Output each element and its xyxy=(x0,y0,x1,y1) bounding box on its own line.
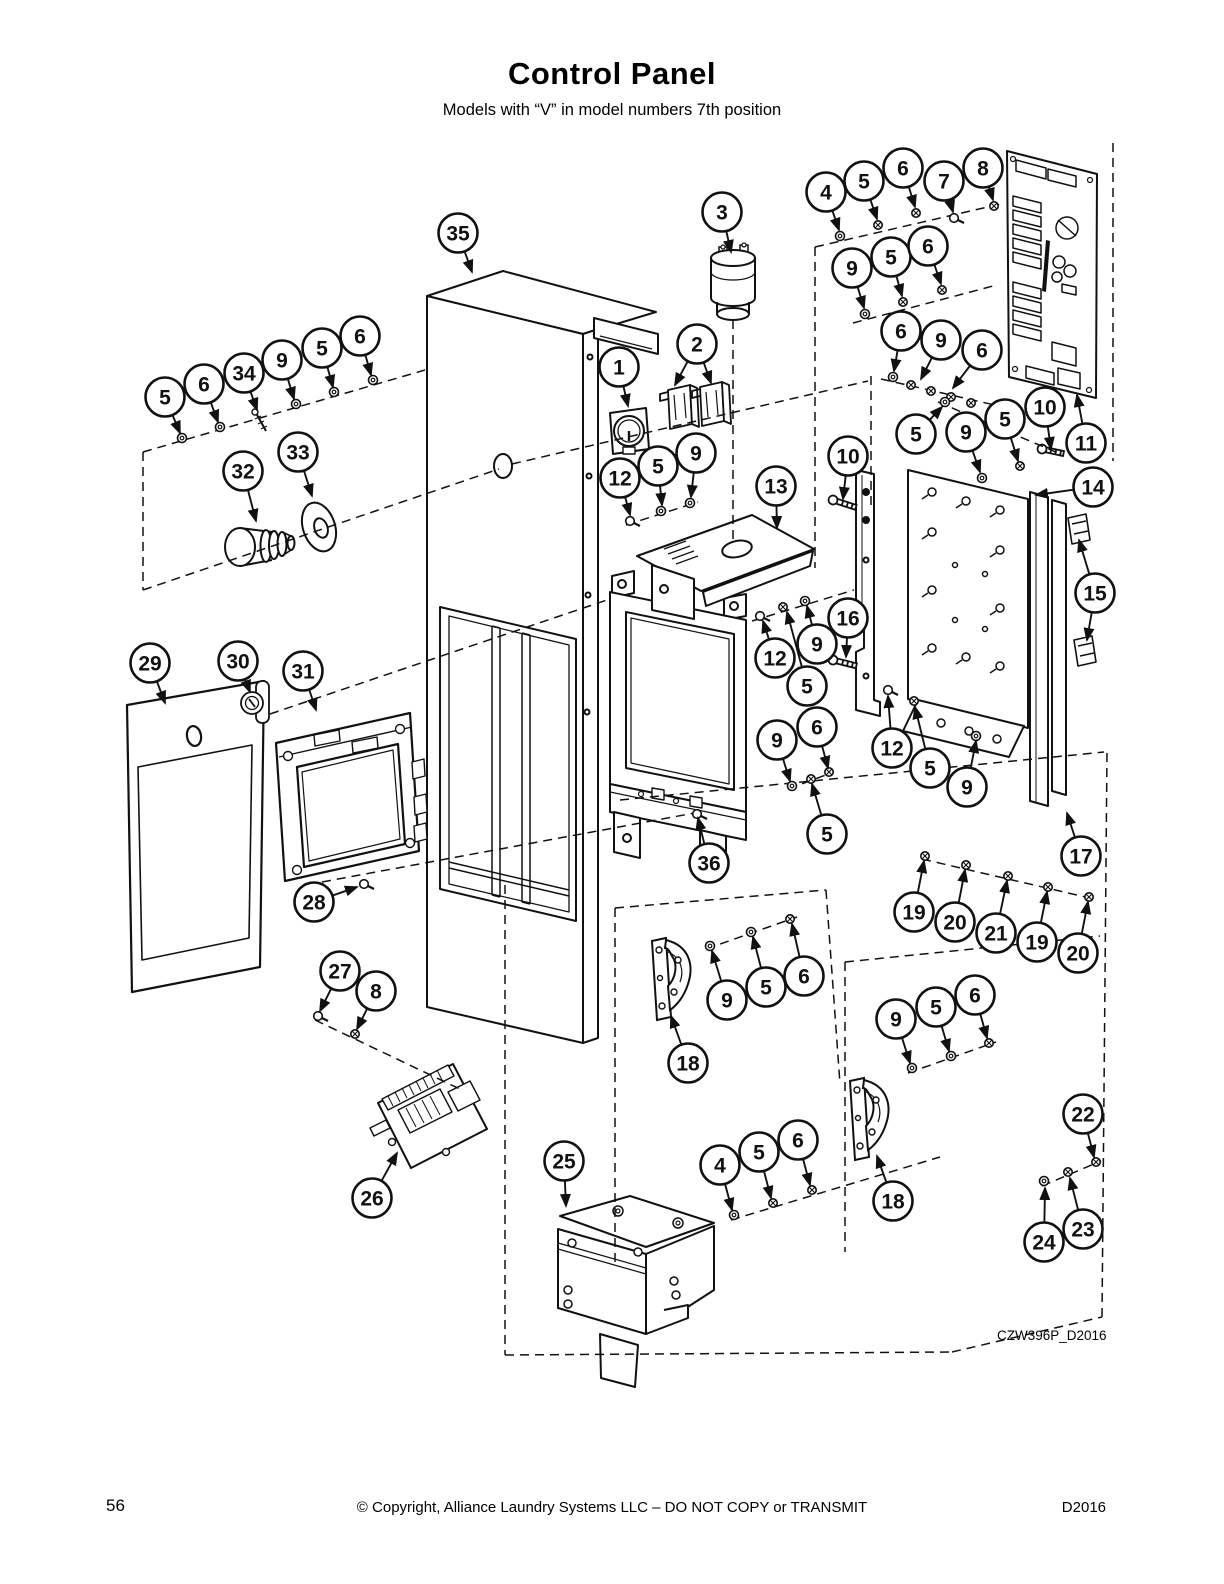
callout-leader xyxy=(763,621,769,639)
nut-icon xyxy=(967,399,975,407)
callout-28: 28 xyxy=(295,883,358,922)
callout-5: 5 xyxy=(639,447,678,506)
front-panel-door xyxy=(127,681,264,992)
callout-18: 18 xyxy=(874,1156,913,1221)
washer-icon xyxy=(1040,1177,1049,1186)
display-assembly xyxy=(276,713,427,881)
callout-number: 5 xyxy=(924,758,936,781)
callout-leader xyxy=(888,696,891,729)
callout-leader xyxy=(753,937,761,968)
manual-page: Control Panel Models with “V” in model n… xyxy=(0,0,1224,1584)
callout-number: 5 xyxy=(753,1142,765,1165)
callout-number: 5 xyxy=(858,171,870,194)
callout-number: 6 xyxy=(354,326,366,349)
callout-34: 34 xyxy=(225,354,264,411)
callout-number: 31 xyxy=(291,661,315,684)
callout-number: 5 xyxy=(316,338,328,361)
nut-icon xyxy=(938,286,946,294)
callout-number: 3 xyxy=(716,202,728,225)
callout-number: 5 xyxy=(159,387,171,410)
callout-leader xyxy=(1079,540,1089,574)
callout-number: 33 xyxy=(286,442,309,465)
exploded-diagram: 3531212591345678956696595101110141516129… xyxy=(0,0,1224,1584)
callout-number: 6 xyxy=(895,321,907,344)
callout-number: 19 xyxy=(1025,932,1048,955)
nut-icon xyxy=(962,861,970,869)
callout-leader xyxy=(1011,438,1018,461)
callout-leader xyxy=(327,367,333,387)
side-bracket xyxy=(856,470,880,716)
callout-7: 7 xyxy=(925,162,964,213)
callout-number: 26 xyxy=(360,1188,383,1211)
callout-leader xyxy=(792,924,800,957)
callout-number: 29 xyxy=(138,653,161,676)
callout-1: 1 xyxy=(600,348,639,407)
callout-number: 5 xyxy=(999,409,1011,432)
washer-icon xyxy=(978,474,987,483)
callout-6: 6 xyxy=(884,149,923,208)
callout-leader xyxy=(921,357,932,379)
callout-19: 19 xyxy=(895,861,934,932)
callout-number: 20 xyxy=(1066,943,1089,966)
callout-number: 6 xyxy=(798,966,810,989)
lock-washer xyxy=(296,498,342,555)
callout-number: 10 xyxy=(1033,397,1056,420)
callout-leader xyxy=(807,606,812,625)
callout-number: 18 xyxy=(881,1191,905,1214)
callout-leader xyxy=(909,187,915,207)
nut-icon xyxy=(907,381,915,389)
callout-leader xyxy=(989,187,993,200)
callout-number: 23 xyxy=(1071,1219,1094,1242)
callout-leader xyxy=(1041,892,1047,923)
callout-leader xyxy=(934,264,941,284)
callout-number: 6 xyxy=(792,1130,804,1153)
callout-leader xyxy=(332,887,357,896)
callout-17: 17 xyxy=(1062,813,1101,876)
callout-23: 23 xyxy=(1064,1178,1103,1249)
nut-icon xyxy=(786,915,794,923)
nut-icon xyxy=(351,1030,359,1038)
callout-number: 6 xyxy=(969,985,981,1008)
callout-number: 5 xyxy=(930,997,942,1020)
callout-number: 16 xyxy=(836,608,859,631)
callout-9: 9 xyxy=(947,413,986,473)
callout-leader xyxy=(959,870,965,903)
callout-6: 6 xyxy=(779,1121,818,1186)
callout-number: 36 xyxy=(697,853,720,876)
callout-leader xyxy=(565,1180,566,1206)
callout-leader xyxy=(822,746,828,768)
callout-leader xyxy=(660,485,662,505)
callout-leader xyxy=(357,1008,367,1029)
washer-icon xyxy=(801,597,810,606)
callout-number: 6 xyxy=(811,717,823,740)
callout-number: 9 xyxy=(846,258,858,281)
callout-leader xyxy=(309,689,316,710)
callout-8: 8 xyxy=(357,972,396,1030)
diagram-code: CZW396P_D2016 xyxy=(997,1328,1107,1343)
callout-leader xyxy=(1067,813,1075,837)
callout-number: 6 xyxy=(922,236,934,259)
callout-number: 13 xyxy=(764,476,787,499)
callout-number: 5 xyxy=(760,977,772,1000)
callout-8: 8 xyxy=(964,149,1003,201)
callout-leader xyxy=(1082,902,1088,934)
nut-icon xyxy=(874,221,882,229)
callout-3: 3 xyxy=(703,193,742,253)
callout-leader xyxy=(304,471,312,496)
washer-icon xyxy=(686,499,695,508)
callout-number: 5 xyxy=(652,456,664,479)
callout-number: 10 xyxy=(836,446,859,469)
callout-5: 5 xyxy=(808,784,847,854)
nut-icon xyxy=(1044,883,1052,891)
callout-number: 30 xyxy=(226,651,249,674)
callout-5: 5 xyxy=(747,937,786,1007)
callout-number: 9 xyxy=(960,422,972,445)
callout-leader xyxy=(320,988,331,1011)
nut-icon xyxy=(910,697,918,705)
screw-icon xyxy=(884,686,898,695)
callout-5: 5 xyxy=(740,1133,779,1199)
washer-icon xyxy=(369,376,378,385)
callout-number: 11 xyxy=(1075,433,1098,456)
callout-number: 12 xyxy=(763,648,786,671)
power-board xyxy=(370,1064,487,1168)
callout-12: 12 xyxy=(601,459,640,516)
callout-leader xyxy=(764,1171,771,1198)
callout-4: 4 xyxy=(701,1146,740,1211)
callout-number: 2 xyxy=(691,334,703,357)
nut-icon xyxy=(927,387,935,395)
callout-leader xyxy=(896,276,902,296)
washer-icon xyxy=(730,1211,739,1220)
control-board xyxy=(1007,151,1097,398)
screw-icon xyxy=(360,880,374,889)
callout-5: 5 xyxy=(146,378,185,434)
callout-5: 5 xyxy=(917,988,956,1052)
washer-icon xyxy=(178,434,187,443)
set-screw xyxy=(252,409,267,431)
callout-number: 25 xyxy=(552,1151,576,1174)
callout-9: 9 xyxy=(758,721,797,782)
callout-number: 9 xyxy=(935,330,947,353)
callout-leader xyxy=(783,759,790,781)
callout-leader xyxy=(675,361,688,385)
nut-icon xyxy=(1064,1168,1072,1176)
nut-icon xyxy=(808,1186,816,1194)
callout-number: 34 xyxy=(232,363,256,386)
callout-9: 9 xyxy=(921,321,961,380)
callout-31: 31 xyxy=(284,652,323,711)
callout-number: 9 xyxy=(771,730,783,753)
callout-number: 35 xyxy=(446,223,470,246)
callout-5: 5 xyxy=(986,400,1025,462)
callout-leader xyxy=(465,251,472,272)
callout-number: 32 xyxy=(231,461,254,484)
callout-number: 7 xyxy=(938,171,950,194)
callout-number: 20 xyxy=(943,912,966,935)
nut-icon xyxy=(1016,462,1024,470)
callout-9: 9 xyxy=(708,951,747,1020)
callout-6: 6 xyxy=(956,976,995,1039)
callout-number: 6 xyxy=(897,158,909,181)
callout-leader xyxy=(953,366,970,388)
callout-29: 29 xyxy=(131,644,170,704)
callout-32: 32 xyxy=(224,452,263,522)
callout-number: 24 xyxy=(1032,1232,1056,1255)
callout-33: 33 xyxy=(279,433,318,497)
callout-leader xyxy=(623,386,628,406)
callout-12: 12 xyxy=(756,621,795,678)
callout-27: 27 xyxy=(320,952,360,1012)
callout-leader xyxy=(248,490,256,521)
callout-leader xyxy=(930,407,942,420)
callout-21: 21 xyxy=(977,881,1016,953)
callout-13: 13 xyxy=(757,467,796,529)
knob xyxy=(225,528,295,566)
callout-leader xyxy=(803,1159,810,1185)
hinge-right xyxy=(850,1078,888,1160)
callout-number: 12 xyxy=(608,468,631,491)
callout-number: 9 xyxy=(276,350,288,373)
callout-24: 24 xyxy=(1025,1188,1064,1262)
footer-copyright: © Copyright, Alliance Laundry Systems LL… xyxy=(0,1499,1224,1516)
callout-number: 18 xyxy=(676,1053,700,1076)
callout-leader xyxy=(870,199,877,219)
callout-number: 12 xyxy=(880,738,903,761)
callout-leader xyxy=(1077,395,1082,424)
callout-leader xyxy=(625,497,630,515)
callout-5: 5 xyxy=(872,238,911,297)
callout-leader xyxy=(1048,426,1051,449)
callout-4: 4 xyxy=(807,173,846,231)
callout-leader xyxy=(918,861,924,893)
callout-leader xyxy=(877,1156,886,1183)
callout-26: 26 xyxy=(353,1153,398,1218)
callout-number: 8 xyxy=(370,981,382,1004)
callout-leader xyxy=(980,1014,987,1038)
button-bushing xyxy=(711,243,755,320)
callout-leader xyxy=(902,1038,910,1063)
callout-2: 2 xyxy=(675,325,717,386)
hinge-left xyxy=(652,938,690,1020)
callout-number: 21 xyxy=(984,923,1008,946)
callout-leader xyxy=(211,402,218,422)
callout-19: 19 xyxy=(1018,892,1057,962)
callout-leader xyxy=(691,472,694,497)
callout-leader xyxy=(1088,1133,1094,1157)
bottom-bracket xyxy=(558,1196,714,1387)
callout-number: 6 xyxy=(976,340,988,363)
callout-leader xyxy=(250,391,257,410)
washer-icon xyxy=(216,423,225,432)
callout-6: 6 xyxy=(341,317,380,376)
callout-9: 9 xyxy=(877,1000,916,1064)
callout-number: 19 xyxy=(902,902,925,925)
callout-number: 4 xyxy=(714,1155,726,1178)
callout-number: 22 xyxy=(1071,1104,1094,1127)
callout-number: 5 xyxy=(910,424,922,447)
callout-number: 14 xyxy=(1081,477,1105,500)
nut-icon xyxy=(1085,893,1093,901)
callout-leader xyxy=(725,1184,732,1210)
callout-number: 9 xyxy=(890,1009,902,1032)
callout-leader xyxy=(288,379,294,399)
callout-leader xyxy=(712,951,721,981)
mounting-plate xyxy=(903,470,1028,757)
callout-leader xyxy=(173,415,181,433)
callout-6: 6 xyxy=(882,312,921,372)
washer-icon xyxy=(747,928,756,937)
callout-leader xyxy=(1000,881,1007,914)
washer-icon xyxy=(972,732,981,741)
callout-5: 5 xyxy=(897,407,943,454)
screw-icon xyxy=(950,214,964,223)
callout-leader xyxy=(843,475,846,499)
callout-leader xyxy=(365,355,371,375)
nut-icon xyxy=(807,775,815,783)
washer-icon xyxy=(657,507,666,516)
washer-icon xyxy=(947,1052,956,1061)
callout-leader xyxy=(846,637,847,657)
callout-leader xyxy=(942,1026,949,1051)
washer-icon xyxy=(861,310,870,319)
callout-leader xyxy=(972,450,980,472)
screw-icon xyxy=(314,1012,328,1021)
nut-icon xyxy=(912,209,920,217)
callout-number: 9 xyxy=(690,443,702,466)
nut-icon xyxy=(1092,1158,1100,1166)
callout-9: 9 xyxy=(833,249,872,309)
callout-6: 6 xyxy=(185,365,224,423)
screw-icon xyxy=(626,517,640,526)
callout-number: 1 xyxy=(613,357,625,380)
nut-icon xyxy=(1004,872,1012,880)
callout-leader xyxy=(858,287,864,308)
footer-doc-code: D2016 xyxy=(1062,1499,1106,1516)
callout-leader xyxy=(381,1153,397,1181)
callout-number: 8 xyxy=(977,158,989,181)
washer-icon xyxy=(292,400,301,409)
callout-number: 5 xyxy=(821,824,833,847)
callout-11: 11 xyxy=(1067,395,1106,463)
nut-icon xyxy=(921,852,929,860)
callout-number: 6 xyxy=(198,374,210,397)
washer-icon xyxy=(836,232,845,241)
callout-10: 10 xyxy=(1026,388,1065,450)
washer-icon xyxy=(889,373,898,382)
callout-5: 5 xyxy=(845,162,884,220)
callout-number: 17 xyxy=(1069,846,1092,869)
callout-number: 15 xyxy=(1083,583,1107,606)
callout-number: 9 xyxy=(721,990,733,1013)
callout-leader xyxy=(1044,1188,1045,1223)
callout-22: 22 xyxy=(1064,1095,1103,1158)
callout-number: 9 xyxy=(811,634,823,657)
callout-number: 4 xyxy=(820,182,832,205)
callout-leader xyxy=(812,784,821,815)
nut-icon xyxy=(990,202,998,210)
callout-number: 5 xyxy=(885,247,897,270)
washer-icon xyxy=(908,1064,917,1073)
keyswitch xyxy=(610,408,649,454)
washer-icon xyxy=(706,942,715,951)
callout-leader xyxy=(704,362,711,383)
callout-20: 20 xyxy=(936,870,975,942)
washer-icon xyxy=(788,782,797,791)
callout-6: 6 xyxy=(909,227,948,285)
callout-18: 18 xyxy=(669,1016,708,1083)
washer-icon xyxy=(330,388,339,397)
callout-leader xyxy=(832,210,839,230)
callout-number: 27 xyxy=(328,961,351,984)
washer-icon xyxy=(941,398,950,407)
callout-6: 6 xyxy=(798,708,837,769)
callout-35: 35 xyxy=(439,214,478,273)
callout-leader xyxy=(671,1016,681,1045)
nut-icon xyxy=(779,603,787,611)
callout-25: 25 xyxy=(545,1142,584,1207)
nut-icon xyxy=(825,768,833,776)
nut-icon xyxy=(769,1199,777,1207)
callout-9: 9 xyxy=(677,434,716,498)
callout-number: 9 xyxy=(961,777,973,800)
callout-9: 9 xyxy=(263,341,302,400)
callout-leader xyxy=(1070,1178,1078,1210)
callout-15: 15 xyxy=(1076,540,1115,640)
callout-number: 28 xyxy=(302,892,326,915)
callout-number: 5 xyxy=(801,676,813,699)
callout-leader xyxy=(1036,490,1074,495)
callout-leader xyxy=(776,505,777,528)
callout-leader xyxy=(949,200,953,212)
callout-5: 5 xyxy=(303,329,342,388)
nut-icon xyxy=(899,298,907,306)
callout-leader xyxy=(894,350,898,371)
callout-6: 6 xyxy=(785,924,824,996)
nut-icon xyxy=(985,1039,993,1047)
